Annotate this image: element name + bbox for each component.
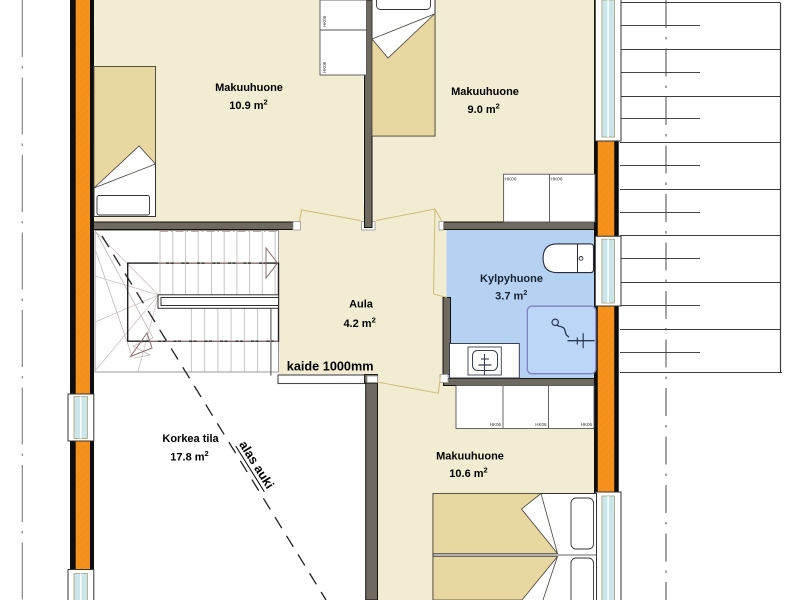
- svg-text:kaide 1000mm: kaide 1000mm: [287, 360, 374, 374]
- svg-text:10.6 m2: 10.6 m2: [449, 466, 487, 481]
- svg-text:Makuuhuone: Makuuhuone: [436, 451, 504, 463]
- svg-text:Makuuhuone: Makuuhuone: [451, 86, 519, 98]
- svg-text:Aula: Aula: [349, 299, 374, 311]
- svg-text:HK06: HK06: [490, 422, 502, 427]
- svg-text:HK06: HK06: [551, 177, 563, 183]
- svg-text:9.0 m2: 9.0 m2: [468, 102, 500, 117]
- svg-text:17.8 m2: 17.8 m2: [170, 449, 208, 464]
- svg-text:Kylpyhuone: Kylpyhuone: [480, 273, 543, 285]
- svg-text:HK06: HK06: [322, 15, 327, 27]
- svg-text:Korkea tila: Korkea tila: [162, 433, 219, 445]
- svg-text:4.2 m2: 4.2 m2: [343, 316, 375, 331]
- svg-text:HK06: HK06: [581, 422, 593, 427]
- svg-text:HK06: HK06: [505, 177, 517, 183]
- svg-text:HK06: HK06: [535, 422, 547, 427]
- svg-text:Makuuhuone: Makuuhuone: [215, 82, 283, 94]
- svg-text:HK06: HK06: [322, 61, 327, 73]
- svg-text:10.9 m2: 10.9 m2: [229, 98, 267, 113]
- svg-text:3.7 m2: 3.7 m2: [495, 288, 527, 303]
